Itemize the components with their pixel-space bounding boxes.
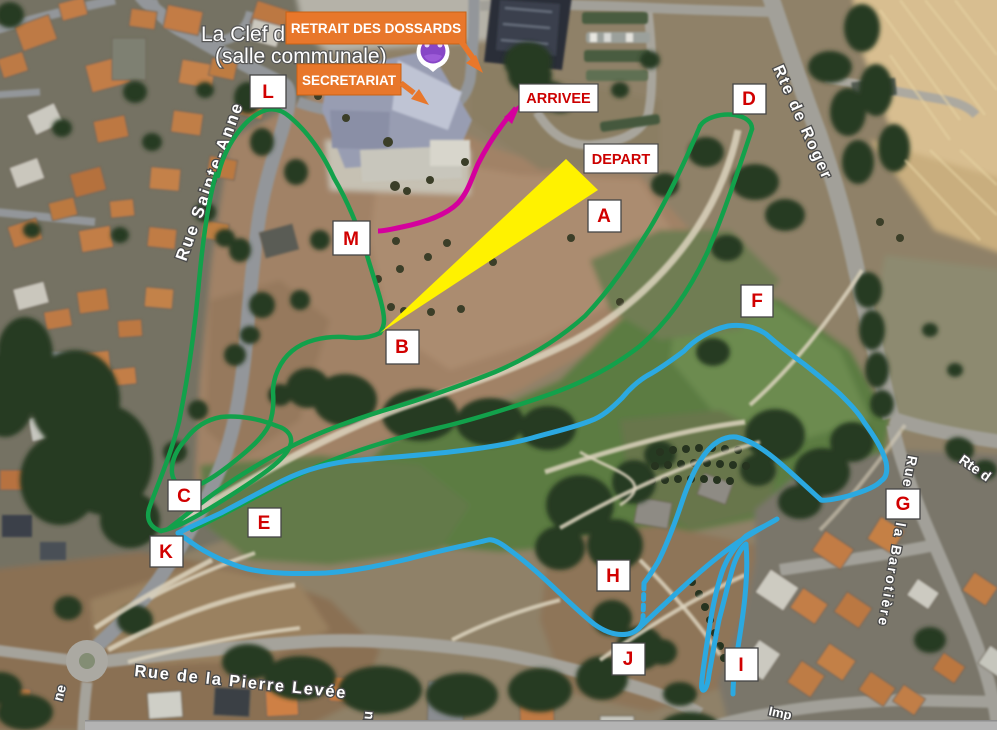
svg-text:ARRIVEE: ARRIVEE (526, 91, 591, 107)
svg-text:D: D (742, 89, 756, 110)
svg-text:SECRETARIAT: SECRETARIAT (302, 73, 397, 88)
svg-text:F: F (751, 291, 763, 312)
svg-text:K: K (159, 542, 173, 563)
svg-text:RETRAIT DES DOSSARDS: RETRAIT DES DOSSARDS (291, 21, 461, 36)
svg-text:B: B (395, 337, 409, 358)
svg-text:La Clef d: La Clef d (201, 23, 285, 46)
svg-text:C: C (177, 486, 191, 507)
svg-text:I: I (738, 655, 743, 676)
svg-text:M: M (343, 229, 359, 250)
svg-text:J: J (623, 649, 634, 670)
svg-text:E: E (258, 513, 271, 534)
svg-text:DEPART: DEPART (592, 152, 651, 168)
svg-text:A: A (597, 206, 611, 227)
svg-text:L: L (262, 82, 274, 103)
svg-text:G: G (896, 494, 911, 515)
svg-text:H: H (606, 566, 620, 587)
